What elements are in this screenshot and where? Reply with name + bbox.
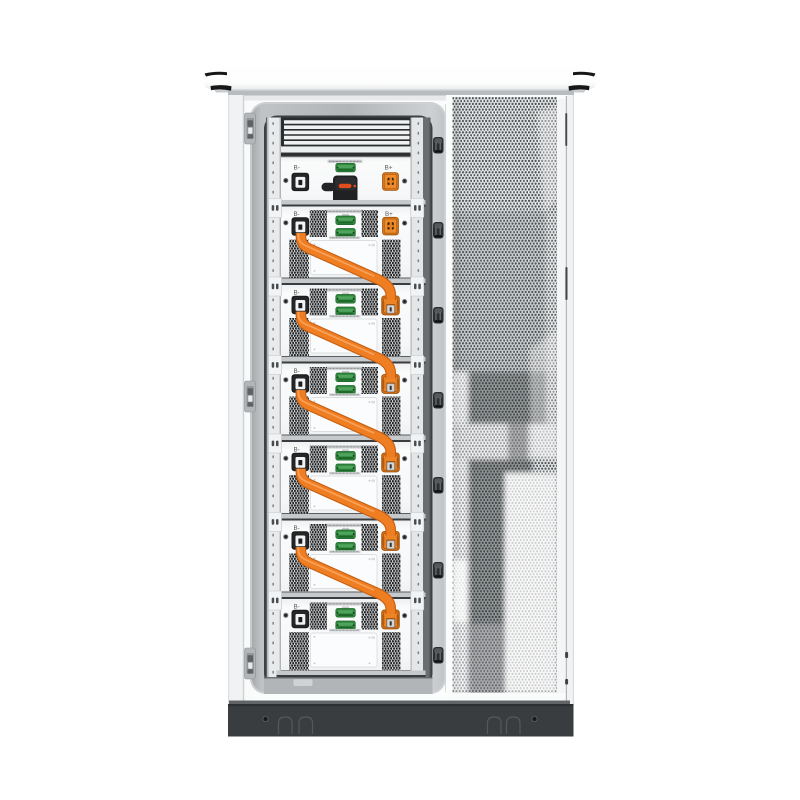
svg-text:B-: B- — [294, 603, 300, 610]
svg-text:B-: B- — [294, 211, 300, 218]
svg-text:B-: B- — [294, 165, 300, 172]
svg-text:B+: B+ — [385, 165, 393, 172]
svg-text:B-: B- — [294, 368, 300, 375]
svg-text:B+: B+ — [385, 211, 393, 218]
svg-text:B-: B- — [294, 525, 300, 532]
svg-text:B-: B- — [294, 289, 300, 296]
svg-text:B-: B- — [294, 446, 300, 453]
